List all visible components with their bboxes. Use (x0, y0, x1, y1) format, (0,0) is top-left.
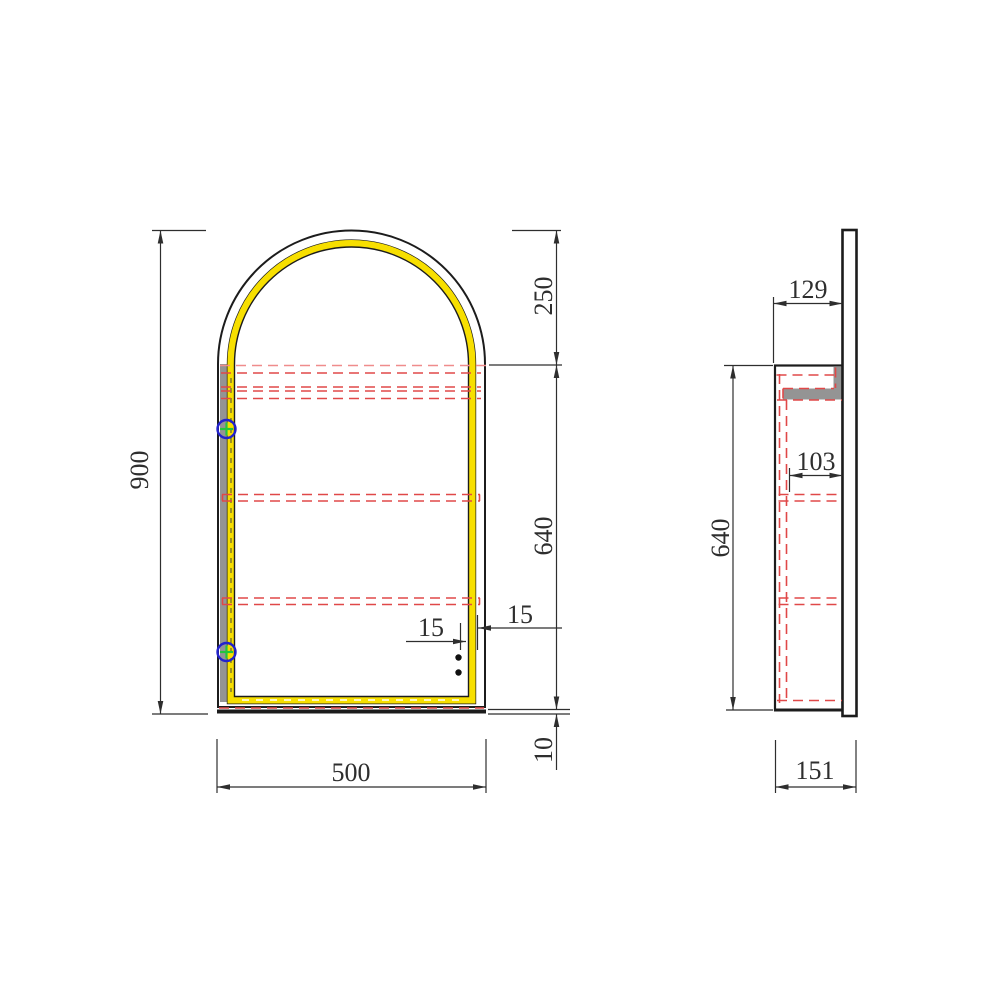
dim-frame-right-label: 15 (507, 600, 533, 629)
dim-cabinet-depth-label: 129 (789, 275, 828, 304)
front-door-outline (218, 231, 485, 708)
dim-overall-height-label: 900 (125, 451, 154, 490)
side-mirror-door (843, 230, 857, 716)
side-cabinet-box (775, 366, 843, 711)
side-gray-rail (783, 389, 843, 400)
front-view: 900 250 640 10 500 15 15 (125, 231, 570, 794)
touch-dot-1 (455, 654, 461, 660)
side-view: 129 103 640 151 (706, 230, 857, 793)
dim-width-label: 500 (332, 758, 371, 787)
touch-dot-2 (455, 669, 461, 675)
technical-drawing-canvas: 900 250 640 10 500 15 15 (0, 0, 1000, 1000)
front-bottom-band (217, 710, 486, 714)
dim-body-height-label: 640 (529, 517, 558, 556)
cabinet-drawing: 900 250 640 10 500 15 15 (0, 0, 1000, 1000)
dim-frame-left-label: 15 (418, 613, 444, 642)
dim-bottom-reveal-label: 10 (529, 737, 558, 763)
dim-total-depth-label: 151 (796, 756, 835, 785)
dim-arch-height-label: 250 (529, 277, 558, 316)
dim-side-body-height-label: 640 (706, 519, 735, 558)
dim-inner-depth-label: 103 (797, 447, 836, 476)
